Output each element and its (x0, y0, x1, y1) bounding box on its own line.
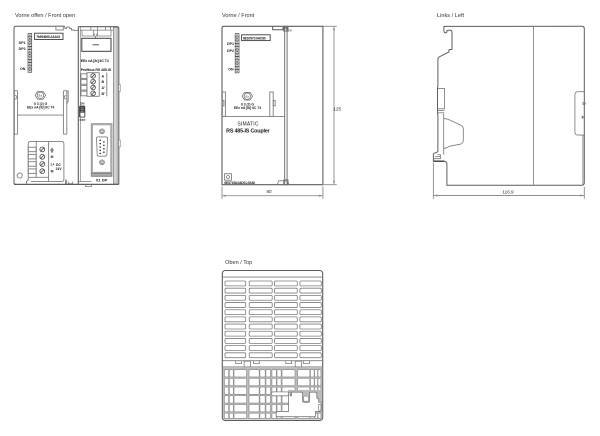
svg-text:EEx nA [ib] IIC T4: EEx nA [ib] IIC T4 (234, 106, 262, 110)
svg-text:24V: 24V (56, 167, 63, 171)
svg-text:Oben / Top: Oben / Top (225, 260, 252, 266)
svg-text:EEx nA [ib] IIC T4: EEx nA [ib] IIC T4 (27, 106, 55, 110)
svg-text:ON: ON (228, 68, 234, 72)
svg-text:B: B (102, 80, 105, 84)
svg-text:L+: L+ (51, 162, 55, 166)
svg-text:ON: ON (20, 67, 26, 71)
svg-text:A: A (102, 74, 105, 78)
svg-text:ON: ON (80, 102, 85, 106)
svg-text:M: M (51, 170, 54, 174)
svg-text:SIMATIC: SIMATIC (237, 122, 258, 128)
svg-text:Profibus RS 485-IS: Profibus RS 485-IS (81, 68, 112, 72)
svg-text:EEx nA [ib] IIC T4: EEx nA [ib] IIC T4 (81, 59, 109, 63)
svg-text:DP2: DP2 (227, 49, 234, 53)
svg-text:80: 80 (266, 189, 272, 194)
svg-text:B′: B′ (102, 92, 106, 96)
svg-text:Vorne / Front: Vorne / Front (222, 13, 255, 19)
svg-text:Ex: Ex (245, 95, 249, 99)
svg-text:DP2: DP2 (19, 47, 26, 51)
svg-text:DP1: DP1 (19, 41, 26, 45)
svg-text:OFF: OFF (80, 118, 86, 122)
svg-text:6ES7158-0AD01-0XA0: 6ES7158-0AD01-0XA0 (224, 181, 255, 185)
svg-text:116.9: 116.9 (502, 189, 514, 194)
svg-text:DP: DP (289, 30, 293, 33)
svg-text:125: 125 (333, 107, 341, 112)
svg-text:RS 485-IS Coupler: RS 485-IS Coupler (226, 129, 270, 135)
svg-text:Ex: Ex (39, 94, 43, 98)
svg-text:M: M (51, 155, 54, 159)
svg-text:DP1: DP1 (227, 42, 234, 46)
svg-text:A′: A′ (102, 86, 106, 90)
svg-text:7MH4900-2AA01: 7MH4900-2AA01 (36, 35, 60, 39)
svg-text:Vorne offen / Front open: Vorne offen / Front open (15, 13, 75, 19)
svg-text:6ES7972-0AC80: 6ES7972-0AC80 (243, 37, 266, 41)
svg-text:X1 DP: X1 DP (96, 177, 108, 182)
svg-text:Links / Left: Links / Left (437, 13, 464, 19)
